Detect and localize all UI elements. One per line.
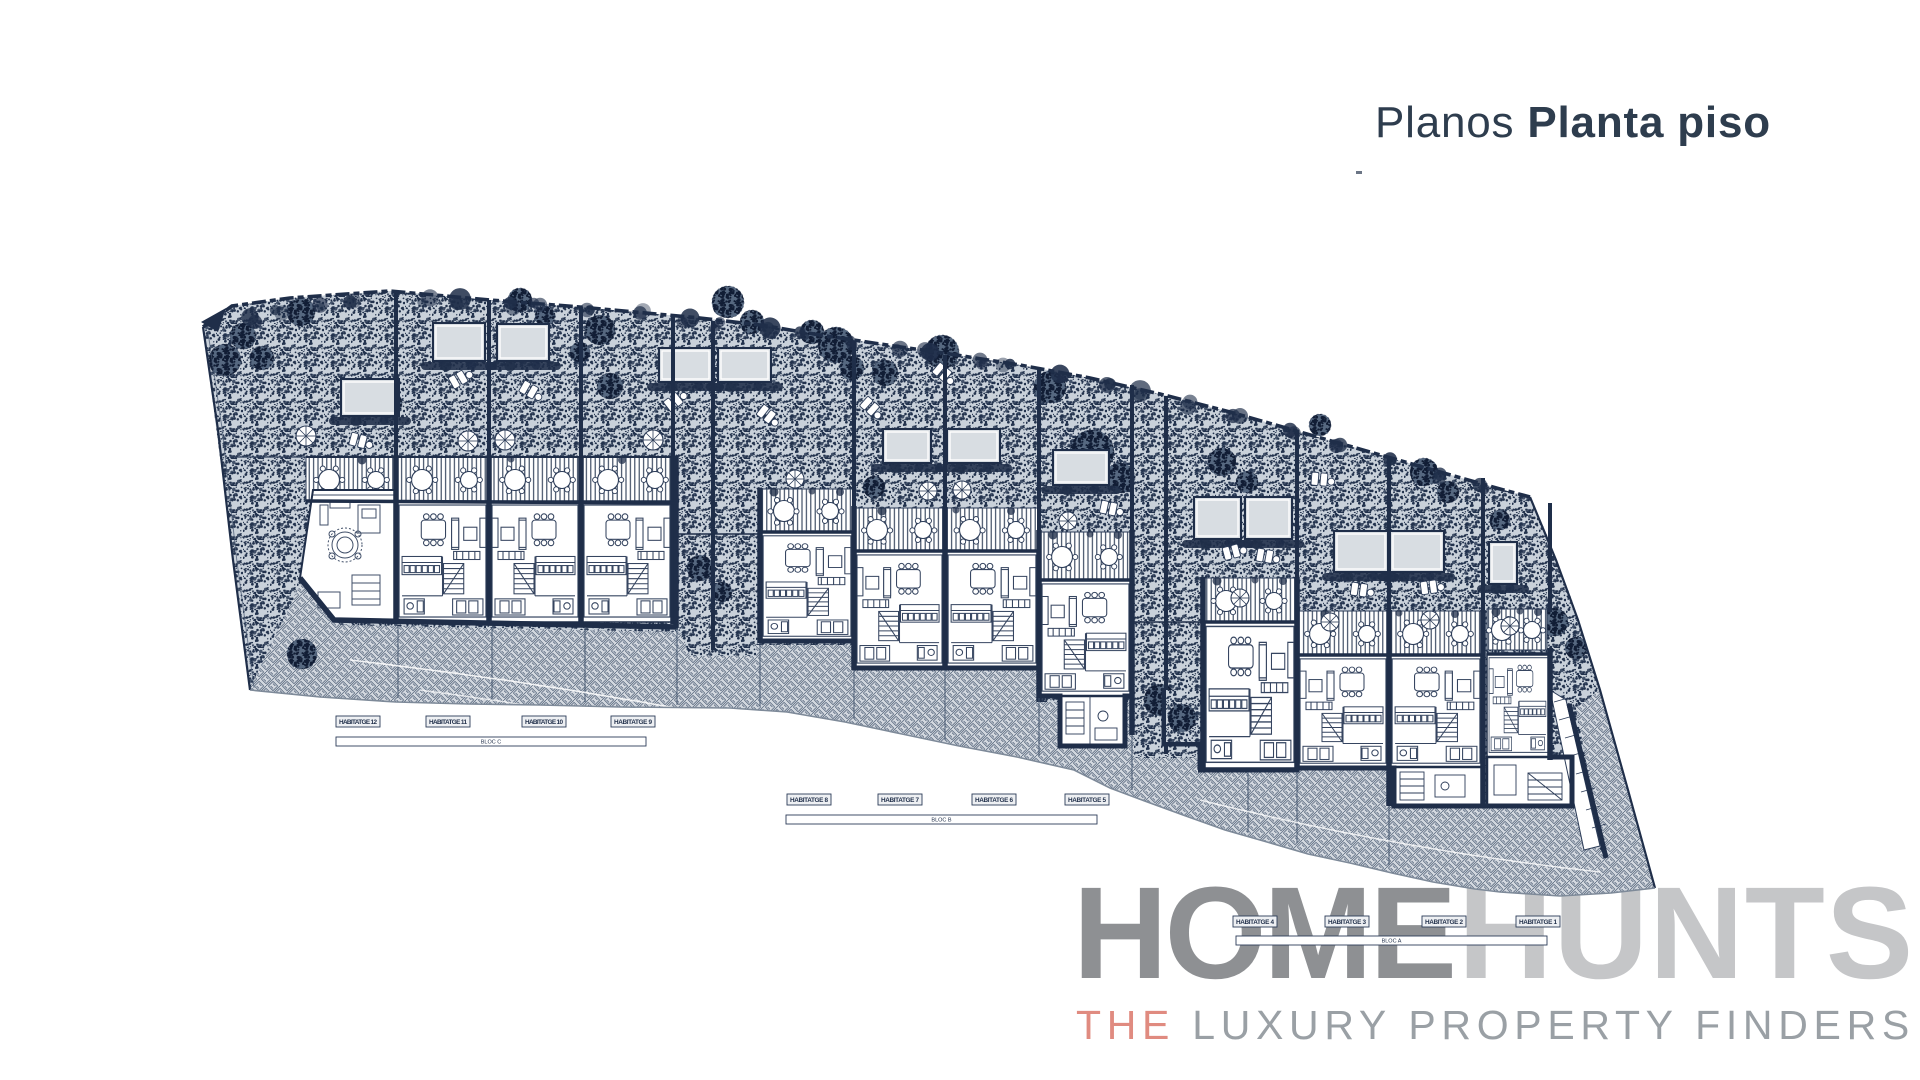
svg-text:HABITATGE 4: HABITATGE 4 [1236,919,1274,926]
svg-text:Planos Planta piso: Planos Planta piso [1375,98,1771,147]
svg-text:HABITATGE 12: HABITATGE 12 [339,719,377,726]
svg-text:HABITATGE 6: HABITATGE 6 [975,797,1013,804]
svg-text:HABITATGE 10: HABITATGE 10 [525,719,563,726]
svg-text:HABITATGE 5: HABITATGE 5 [1068,797,1106,804]
svg-text:HABITATGE 11: HABITATGE 11 [429,719,467,726]
svg-text:BLOC A: BLOC A [1382,939,1402,945]
svg-text:HABITATGE 1: HABITATGE 1 [1519,919,1557,926]
svg-text:HABITATGE 3: HABITATGE 3 [1328,919,1366,926]
svg-text:HABITATGE 7: HABITATGE 7 [881,797,919,804]
svg-text:HABITATGE 9: HABITATGE 9 [614,719,652,726]
svg-text:HABITATGE 2: HABITATGE 2 [1425,919,1463,926]
svg-text:THE LUXURY PROPERTY FINDERS: THE LUXURY PROPERTY FINDERS [1076,1002,1915,1048]
svg-text:HOME: HOME [1073,859,1454,1006]
svg-text:BLOC B: BLOC B [931,818,952,824]
svg-text:BLOC C: BLOC C [481,740,502,746]
svg-text:HABITATGE 8: HABITATGE 8 [790,797,828,804]
